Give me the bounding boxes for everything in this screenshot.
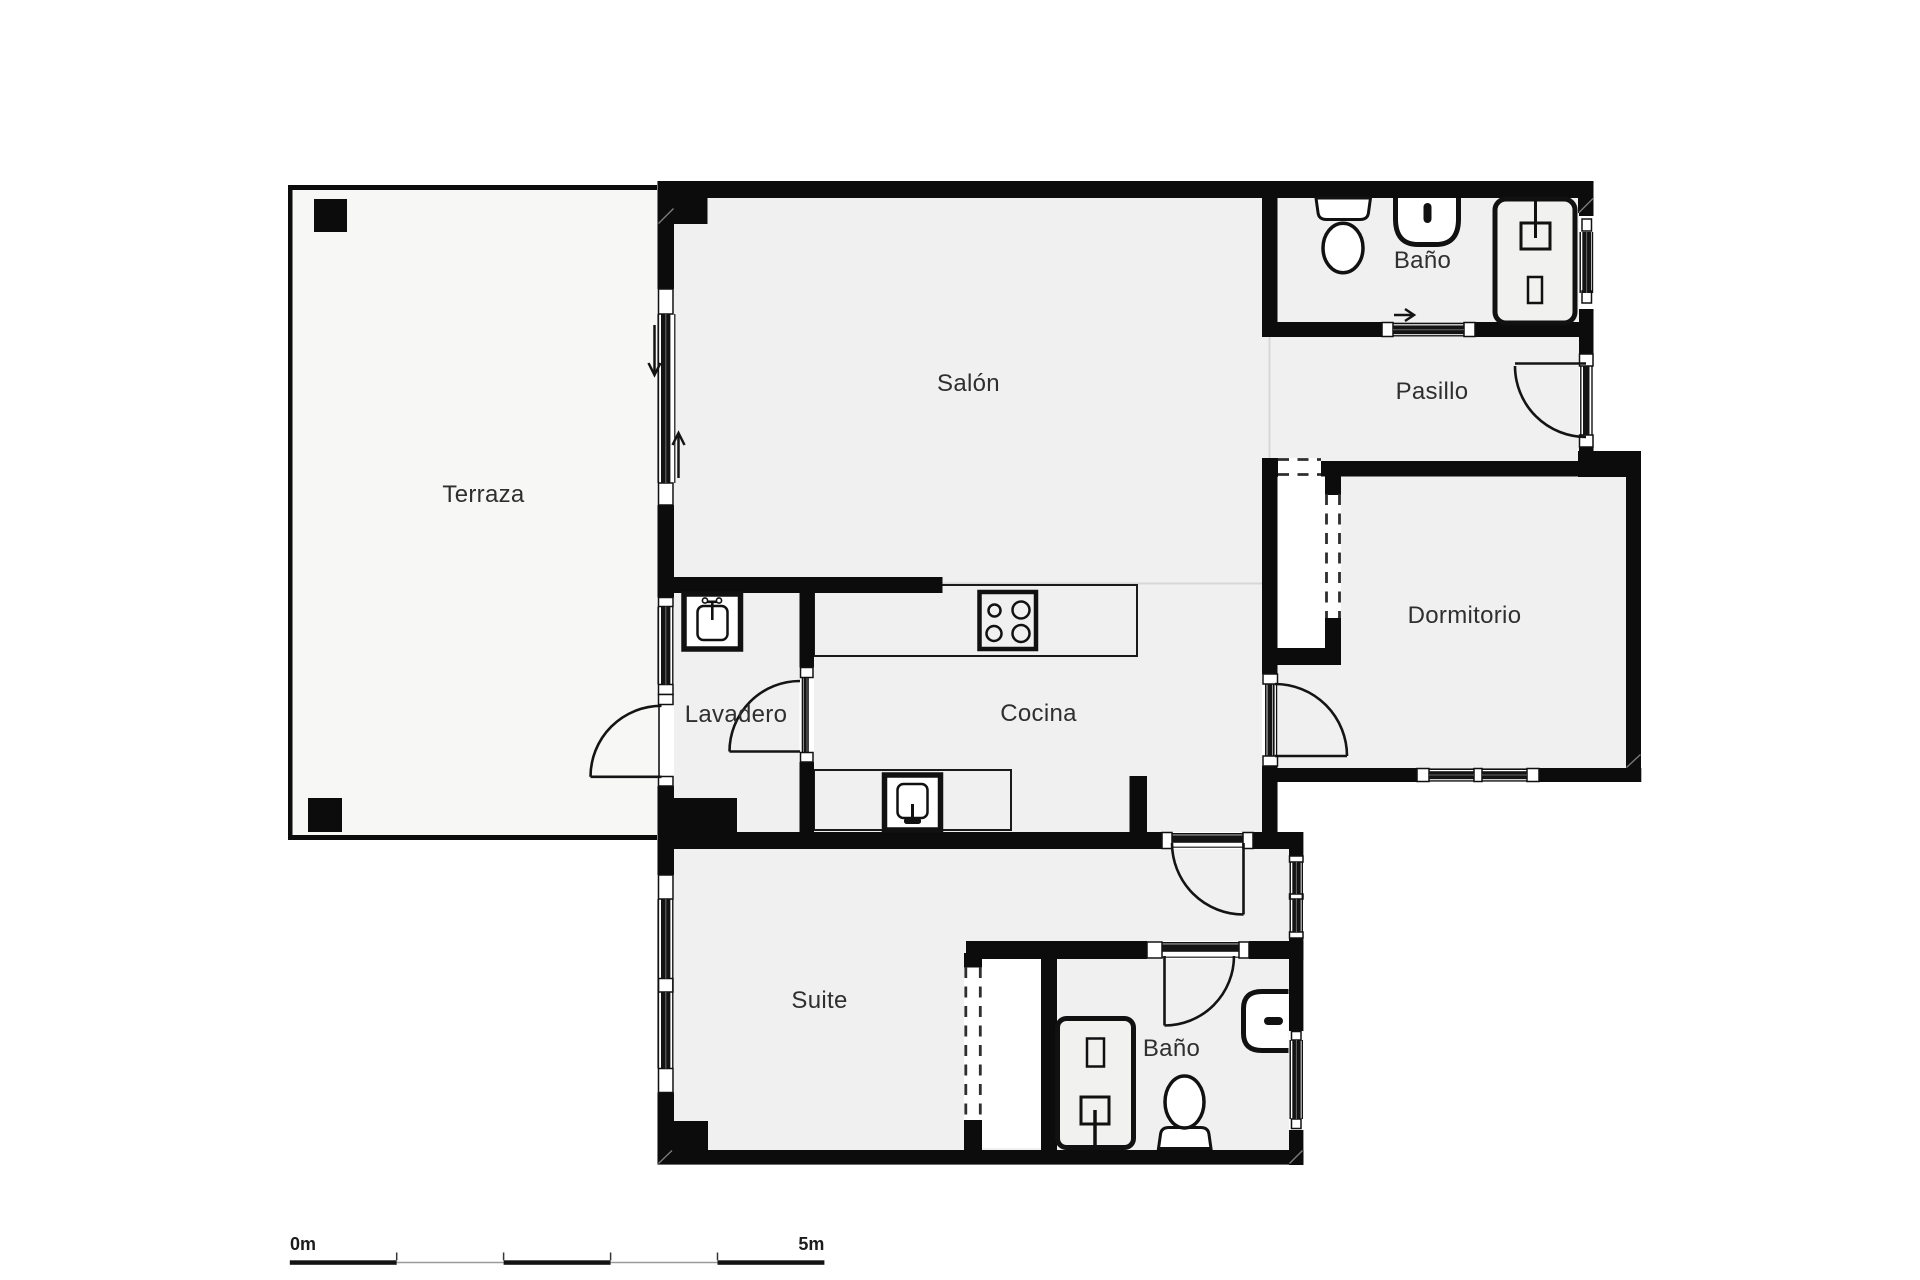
- svg-text:Terraza: Terraza: [442, 481, 524, 508]
- svg-text:Pasillo: Pasillo: [1396, 378, 1469, 405]
- svg-text:Suite: Suite: [791, 987, 847, 1014]
- svg-text:Baño: Baño: [1143, 1035, 1200, 1062]
- svg-text:Lavadero: Lavadero: [685, 701, 787, 728]
- svg-text:5m: 5m: [798, 1234, 824, 1254]
- svg-text:Dormitorio: Dormitorio: [1408, 602, 1522, 629]
- svg-text:0m: 0m: [290, 1234, 316, 1254]
- svg-text:Salón: Salón: [937, 370, 1000, 397]
- svg-text:Baño: Baño: [1394, 247, 1451, 274]
- svg-text:Cocina: Cocina: [1000, 700, 1077, 727]
